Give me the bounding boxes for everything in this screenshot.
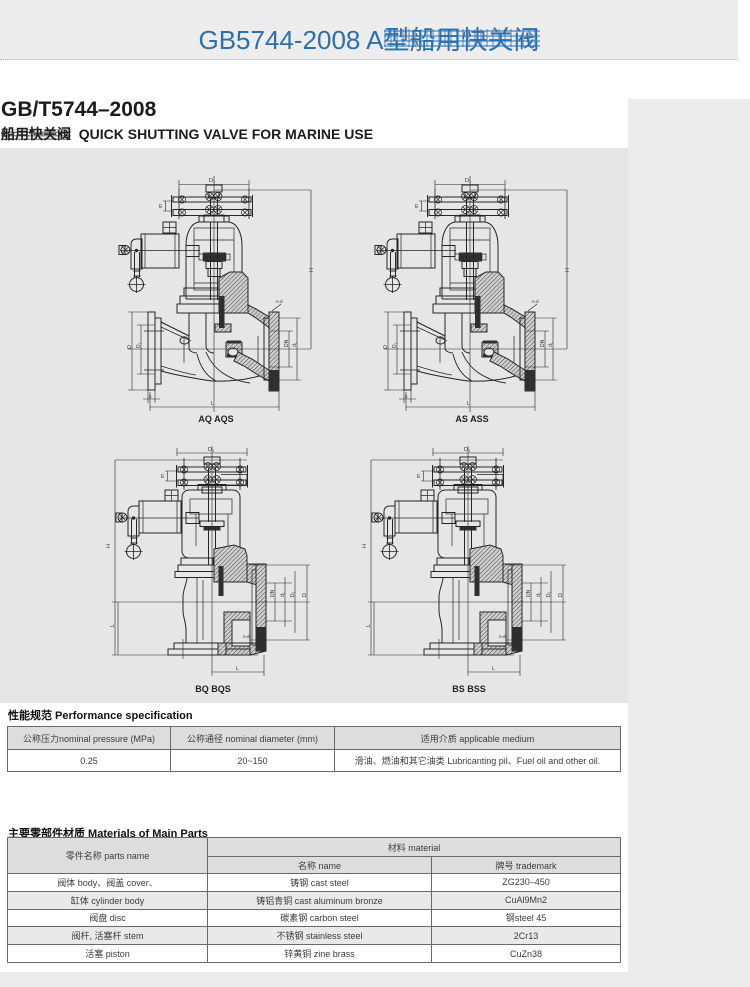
svg-text:D: D bbox=[127, 345, 133, 349]
svg-text:AS ASS: AS ASS bbox=[455, 414, 488, 424]
svg-text:d1: d1 bbox=[280, 592, 286, 597]
svg-text:AQ AQS: AQ AQS bbox=[198, 414, 233, 424]
svg-text:b: b bbox=[149, 394, 152, 399]
svg-text:n-d: n-d bbox=[276, 299, 283, 304]
svg-text:L: L bbox=[110, 624, 116, 627]
svg-text:DN: DN bbox=[270, 589, 276, 597]
svg-text:L: L bbox=[236, 666, 239, 672]
svg-text:H: H bbox=[309, 268, 315, 272]
svg-text:D1: D1 bbox=[136, 342, 142, 348]
svg-text:D: D bbox=[302, 593, 308, 597]
svg-text:n-d: n-d bbox=[243, 634, 250, 639]
svg-text:L: L bbox=[211, 401, 214, 407]
svg-text:E: E bbox=[161, 474, 165, 480]
svg-text:BQ BQS: BQ BQS bbox=[195, 684, 231, 694]
svg-text:d1: d1 bbox=[292, 342, 298, 347]
svg-text:D1: D1 bbox=[208, 447, 215, 453]
svg-text:D1: D1 bbox=[209, 178, 216, 184]
svg-text:BS BSS: BS BSS bbox=[452, 684, 486, 694]
svg-text:DN: DN bbox=[284, 339, 290, 347]
svg-text:H: H bbox=[106, 544, 112, 548]
svg-text:D1: D1 bbox=[290, 591, 296, 597]
svg-text:E: E bbox=[159, 204, 163, 210]
